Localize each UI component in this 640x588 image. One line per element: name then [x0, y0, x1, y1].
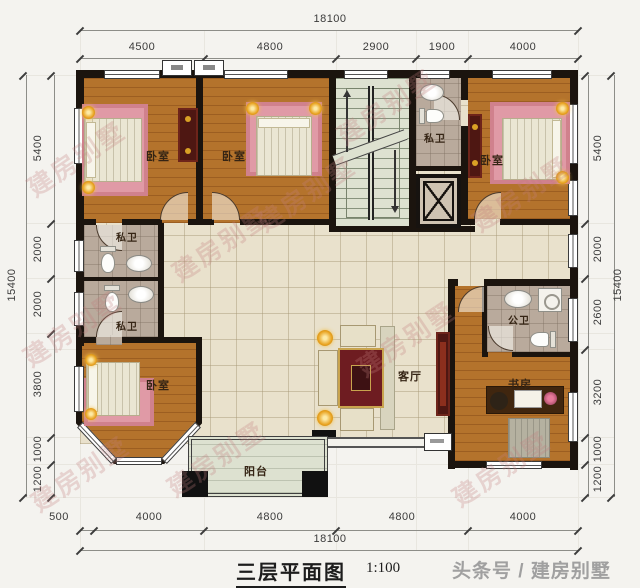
- room-label-bath-top: 私卫: [424, 130, 446, 145]
- balcony-column: [182, 471, 208, 497]
- window: [568, 234, 578, 268]
- dim-tick: [19, 494, 27, 502]
- dim-right-total: 15400: [612, 261, 624, 309]
- dim-tick: [90, 527, 98, 535]
- lounge-chair: [508, 418, 550, 458]
- wall: [416, 166, 461, 171]
- dim-left-seg: 2000: [32, 279, 44, 329]
- room-label-bedroom-tm: 卧室: [222, 148, 246, 164]
- dim-line: [26, 75, 27, 497]
- stair-arrow: [394, 150, 396, 206]
- wall: [461, 70, 468, 100]
- dim-line: [80, 530, 578, 531]
- stair-arrow: [346, 96, 348, 152]
- vent-mark: [203, 65, 215, 70]
- ceiling-lamp: [82, 106, 95, 119]
- wall: [84, 277, 158, 281]
- elevator: [416, 174, 461, 228]
- sink: [504, 290, 532, 308]
- railing-mark: [430, 439, 444, 443]
- ceiling-lamp: [246, 102, 259, 115]
- dim-tick: [47, 494, 55, 502]
- wall: [512, 352, 572, 357]
- sink: [126, 255, 152, 272]
- window: [568, 392, 578, 442]
- room-label-bedroom-bl: 卧室: [146, 377, 170, 393]
- wall: [461, 126, 468, 225]
- window: [104, 70, 160, 79]
- wall: [482, 352, 488, 357]
- dim-top-seg: 4800: [240, 41, 300, 53]
- wardrobe-knob: [472, 124, 478, 130]
- dim-bottom-seg: 4000: [119, 511, 179, 523]
- dim-line: [80, 550, 578, 551]
- dim-left-seg: 2000: [32, 224, 44, 274]
- dim-right-seg: 1200: [592, 454, 604, 504]
- railing-box: [424, 433, 452, 451]
- dim-bottom-seg: 4000: [493, 511, 553, 523]
- wardrobe: [178, 108, 198, 162]
- sofa: [340, 325, 376, 347]
- dim-tick: [607, 494, 615, 502]
- dim-right-seg: 2600: [592, 287, 604, 337]
- bed-pillow: [258, 118, 310, 128]
- floor-plan: 18100 4500 4800 2900 1900 4000 500 4000 …: [0, 0, 640, 588]
- ceiling-lamp: [85, 408, 97, 420]
- dim-tick: [574, 547, 582, 555]
- ceiling-lamp: [82, 181, 95, 194]
- wall: [448, 279, 458, 286]
- dim-right-seg: 5400: [592, 123, 604, 173]
- wall: [329, 70, 336, 232]
- bed-pillow: [552, 120, 561, 178]
- washer-drum: [544, 294, 560, 310]
- desk-chair: [490, 392, 508, 410]
- dim-top-total: 18100: [280, 13, 380, 25]
- ceiling-lamp: [556, 102, 569, 115]
- dim-bottom-seg: 4800: [372, 511, 432, 523]
- dim-left-seg: 3800: [32, 359, 44, 409]
- ceiling-lamp: [309, 102, 322, 115]
- room-label-bath-left-upper: 私卫: [116, 229, 138, 244]
- window: [486, 461, 542, 469]
- sofa-set: [316, 324, 396, 432]
- bed-pillow: [88, 364, 98, 412]
- wall: [484, 279, 578, 286]
- tv-panel: [440, 342, 446, 406]
- window: [568, 298, 578, 342]
- dim-tick: [76, 547, 84, 555]
- wall: [240, 219, 336, 225]
- window: [74, 292, 84, 326]
- wall: [158, 223, 164, 343]
- wall: [76, 219, 96, 225]
- window: [568, 180, 578, 216]
- wall: [461, 219, 475, 225]
- tv-cabinet: [436, 332, 450, 416]
- toilet: [105, 292, 119, 312]
- toilet-tank: [100, 246, 116, 252]
- dim-line: [80, 30, 578, 31]
- guide-line: [26, 497, 614, 498]
- floor-lamp: [317, 410, 333, 426]
- drawing-scale: 1:100: [366, 560, 400, 577]
- dim-bottom-seg: 500: [42, 511, 76, 523]
- desk-book: [514, 390, 542, 408]
- window: [420, 70, 450, 79]
- sofa: [318, 350, 338, 406]
- toilet: [101, 253, 115, 273]
- room-label-living: 客厅: [398, 368, 422, 384]
- dim-bottom-seg: 4800: [240, 511, 300, 523]
- window: [224, 70, 288, 79]
- window: [74, 240, 84, 272]
- washing-machine: [538, 288, 562, 312]
- wall: [122, 219, 162, 225]
- floor-lamp: [317, 330, 333, 346]
- toilet-tank: [104, 285, 120, 291]
- window: [492, 70, 552, 79]
- sofa: [340, 408, 374, 431]
- dim-right-seg: 2000: [592, 224, 604, 274]
- dim-left-total: 15400: [6, 261, 18, 309]
- room-label-bedroom-tl: 卧室: [146, 148, 170, 164]
- dim-line: [80, 58, 578, 59]
- room-label-bedroom-tr: 卧室: [480, 152, 504, 168]
- wall: [188, 219, 214, 225]
- guide-line: [578, 30, 579, 550]
- bed-pillow: [86, 122, 96, 178]
- dim-left-seg: 5400: [32, 123, 44, 173]
- dim-top-seg: 1900: [412, 41, 472, 53]
- wardrobe-knob: [185, 116, 191, 122]
- vent-mark: [171, 65, 183, 70]
- elevator-cross: [423, 181, 454, 221]
- vent-box: [194, 60, 224, 76]
- dim-tick: [581, 494, 589, 502]
- dim-bottom-total: 18100: [280, 533, 380, 545]
- toilet-tank: [419, 108, 425, 124]
- dim-top-seg: 2900: [346, 41, 406, 53]
- wall: [500, 219, 578, 225]
- coffee-table: [351, 365, 371, 391]
- room-label-study: 书房: [508, 376, 532, 392]
- room-label-bath-left-lower: 私卫: [116, 318, 138, 333]
- vent-box: [162, 60, 192, 76]
- dim-left-seg: 1200: [32, 454, 44, 504]
- window-bay: [116, 457, 162, 465]
- wardrobe: [468, 114, 482, 178]
- ceiling-lamp: [556, 171, 569, 184]
- wardrobe-knob: [472, 160, 478, 166]
- wardrobe-knob: [185, 148, 191, 154]
- window: [344, 70, 388, 79]
- dim-right-seg: 3200: [592, 367, 604, 417]
- credit-watermark: 头条号 / 建房别墅: [452, 556, 611, 583]
- dim-top-seg: 4000: [493, 41, 553, 53]
- room-label-bath-public: 公卫: [508, 312, 530, 327]
- wall: [409, 70, 416, 232]
- window: [74, 366, 84, 412]
- toilet-tank: [550, 331, 556, 348]
- living-rug: [338, 348, 384, 408]
- dim-top-seg: 4500: [112, 41, 172, 53]
- toilet: [530, 332, 549, 347]
- room-label-balcony: 阳台: [244, 463, 268, 479]
- desk-plant: [544, 392, 557, 405]
- sink: [420, 84, 444, 101]
- stair-arrow-head: [391, 206, 399, 213]
- toilet: [426, 109, 444, 123]
- sink: [128, 286, 154, 303]
- stair-arrow-head: [343, 90, 351, 97]
- balcony-column: [302, 471, 328, 497]
- ceiling-lamp: [85, 354, 97, 366]
- drawing-title: 三层平面图: [236, 556, 346, 588]
